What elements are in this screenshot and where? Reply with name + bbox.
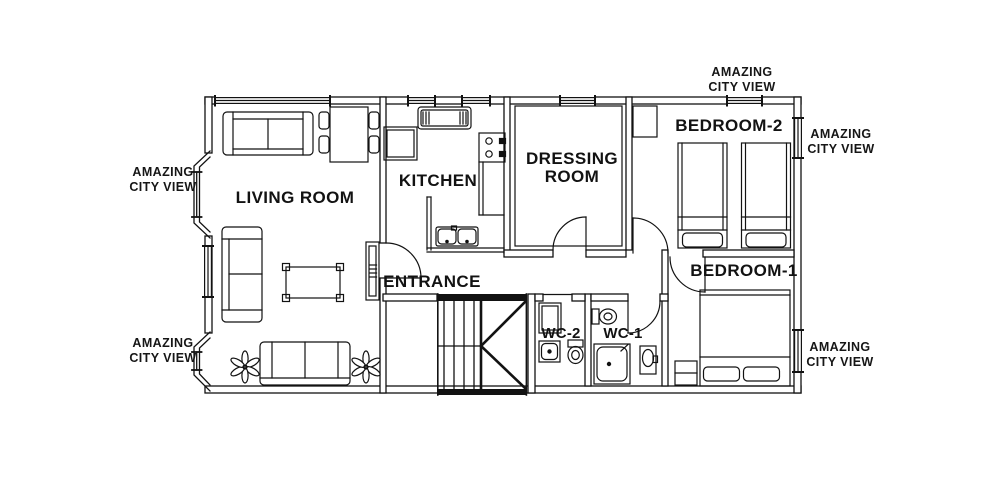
tv-unit-icon [366, 242, 379, 300]
double-bed-icon [700, 290, 790, 386]
view-label-line2: CITY VIEW [129, 351, 196, 366]
view-label-line2: CITY VIEW [806, 355, 873, 370]
view-label-line1: AMAZING [129, 165, 196, 180]
view-label-left-lower: AMAZING CITY VIEW [129, 336, 196, 366]
room-label-dressing-room: DRESSING ROOM [526, 150, 618, 186]
bedroom1-furniture [675, 290, 790, 386]
view-label-line2: CITY VIEW [708, 80, 775, 95]
sofa2-icon [260, 342, 350, 385]
stove-icon [479, 133, 506, 215]
room-label-entrance: ENTRANCE [383, 273, 481, 291]
living-room-furniture [222, 107, 381, 385]
plant-icon [230, 351, 261, 383]
view-label-line1: AMAZING [806, 340, 873, 355]
shower-icon [539, 341, 560, 362]
dressing-room-door-icon [553, 217, 586, 250]
single-bed-icon [678, 143, 727, 248]
bathroom-sink-icon [640, 346, 658, 374]
wardrobe-icon [633, 106, 657, 137]
toilet-icon [592, 309, 617, 324]
view-label-line1: AMAZING [708, 65, 775, 80]
toilet-icon [568, 340, 583, 364]
oven-cabinet-icon [384, 127, 417, 160]
room-label-wc-2: WC-2 [541, 326, 580, 342]
plant-icon [351, 351, 382, 383]
room-label-bedroom-2: BEDROOM-2 [675, 117, 783, 135]
window-icons [203, 96, 803, 372]
view-label-line1: AMAZING [129, 336, 196, 351]
armchair-icon [222, 227, 262, 322]
view-label-left-upper: AMAZING CITY VIEW [129, 165, 196, 195]
dining-table-icon [319, 107, 379, 162]
view-label-top-right: AMAZING CITY VIEW [708, 65, 775, 95]
bedroom2-door-icon [633, 218, 668, 253]
room-label-kitchen: KITCHEN [399, 172, 477, 190]
nightstand-icon [675, 361, 697, 385]
view-label-line2: CITY VIEW [129, 180, 196, 195]
stairs-icon [437, 294, 527, 395]
room-label-wc-1: WC-1 [603, 326, 642, 342]
room-label-living-room: LIVING ROOM [236, 189, 355, 207]
view-label-right-upper: AMAZING CITY VIEW [807, 127, 874, 157]
room-label-line: ROOM [526, 168, 618, 186]
view-label-right-lower: AMAZING CITY VIEW [806, 340, 873, 370]
room-label-bedroom-1: BEDROOM-1 [690, 262, 798, 280]
sofa-icon [223, 112, 313, 155]
wc1-fixtures [592, 309, 658, 384]
floorplan-page: LIVING ROOM KITCHEN DRESSING ROOM BEDROO… [0, 0, 1000, 497]
floorplan-drawing [0, 0, 1000, 497]
coffee-table-icon [283, 264, 344, 302]
interior-walls [380, 97, 794, 393]
shower-icon [594, 344, 630, 384]
view-label-line2: CITY VIEW [807, 142, 874, 157]
single-bed-icon [742, 143, 791, 248]
fridge-icon [418, 107, 471, 129]
view-label-line1: AMAZING [807, 127, 874, 142]
kitchen-sink-icon [436, 226, 478, 246]
room-label-line: DRESSING [526, 150, 618, 168]
